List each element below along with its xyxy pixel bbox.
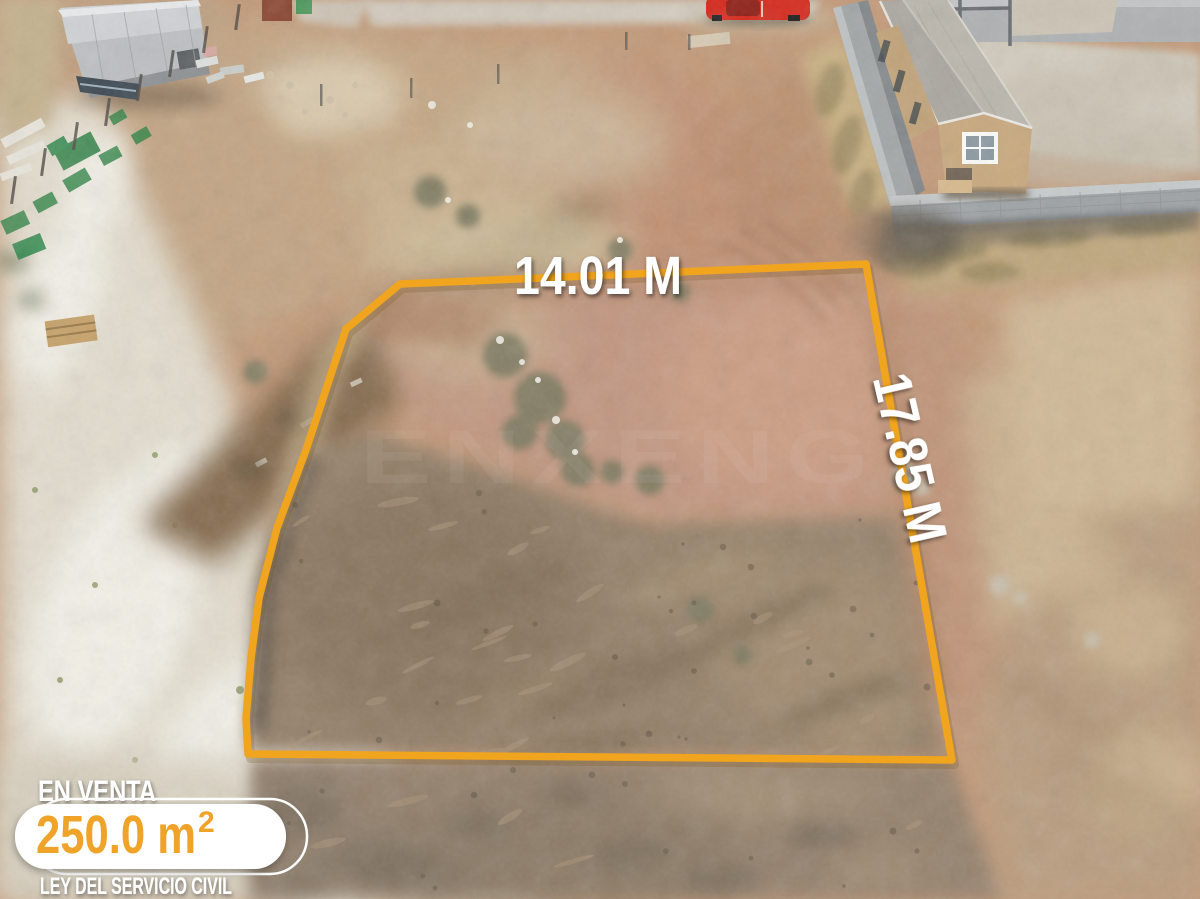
svg-text:2: 2 [198,806,215,839]
svg-text:14.01 M: 14.01 M [514,246,682,306]
svg-text:EN VENTA: EN VENTA [38,775,156,808]
svg-text:ENXENG: ENXENG [360,415,880,500]
svg-text:250.0 m: 250.0 m [36,805,196,865]
svg-text:LEY DEL SERVICIO CIVIL: LEY DEL SERVICIO CIVIL [40,873,232,899]
